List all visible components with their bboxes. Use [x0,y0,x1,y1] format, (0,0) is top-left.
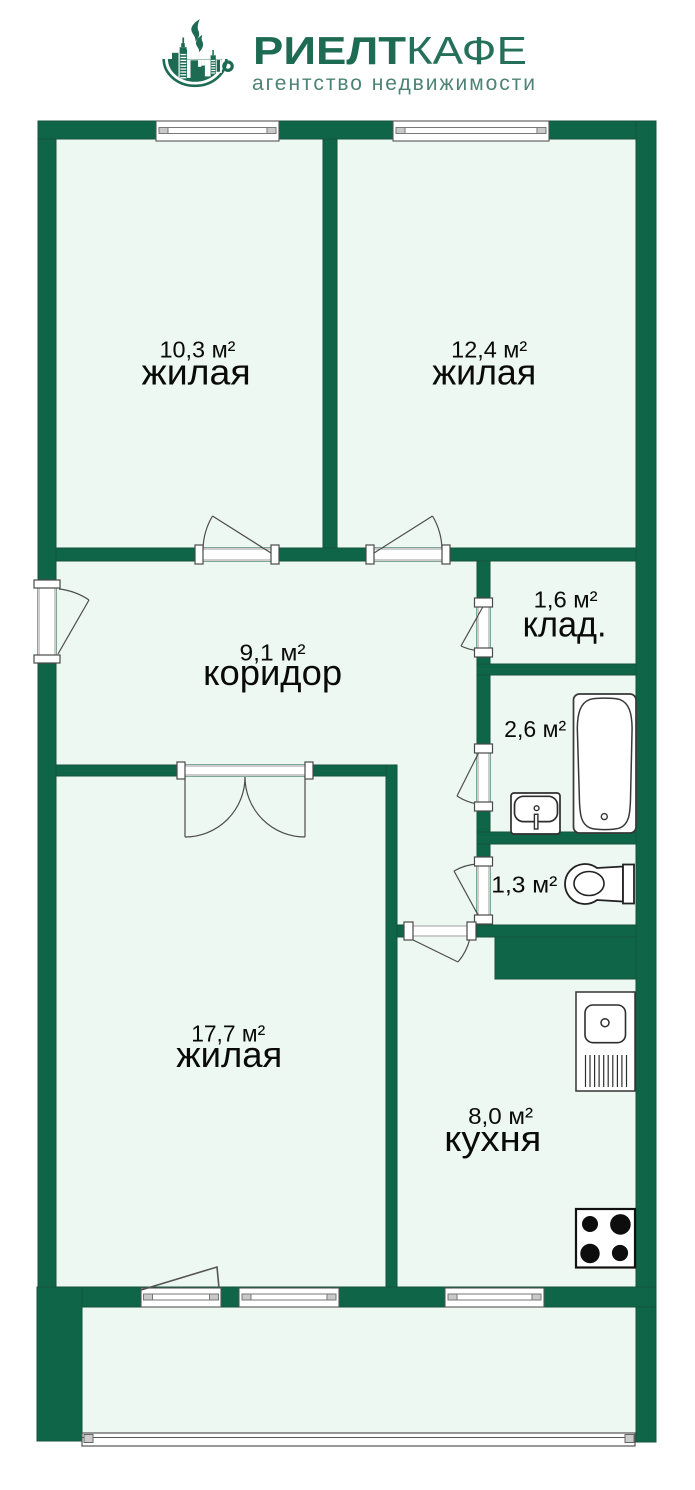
svg-text:кухня: кухня [444,1118,541,1159]
svg-text:жилая: жилая [142,352,251,393]
svg-text:коридор: коридор [203,652,342,693]
svg-text:2,6 м²: 2,6 м² [504,716,566,742]
svg-text:жилая: жилая [176,1034,282,1075]
svg-text:РИЕЛТ: РИЕЛТ [253,30,406,73]
svg-text:клад.: клад. [523,604,607,645]
svg-text:1,3 м²: 1,3 м² [491,872,557,898]
svg-text:жилая: жилая [432,352,536,393]
svg-text:агентство недвижимости: агентство недвижимости [252,72,535,95]
svg-text:КАФЕ: КАФЕ [406,30,527,73]
